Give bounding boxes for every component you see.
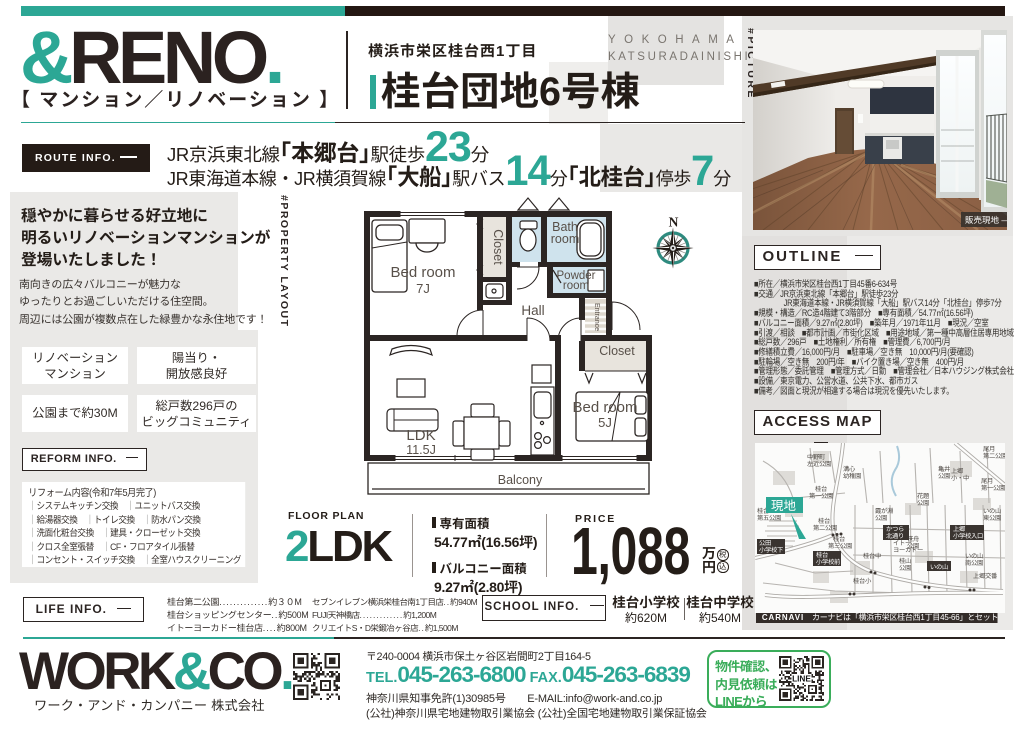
svg-text:ヨーカドー: ヨーカドー (893, 547, 923, 554)
svg-text:尾月: 尾月 (983, 446, 995, 453)
svg-text:公園: 公園 (875, 514, 887, 522)
svg-text:桂台小: 桂台小 (853, 577, 872, 585)
svg-text:いの山: いの山 (965, 552, 983, 560)
svg-text:Closet: Closet (599, 344, 635, 358)
svg-text:Bed room: Bed room (572, 399, 637, 416)
svg-text:room: room (563, 280, 589, 292)
svg-text:亀井: 亀井 (938, 465, 950, 473)
svg-text:桂山: 桂山 (899, 557, 911, 565)
svg-text:7J: 7J (416, 281, 430, 296)
svg-text:N: N (669, 215, 679, 230)
svg-text:Hall: Hall (521, 303, 544, 318)
svg-text:中野町: 中野町 (807, 453, 826, 461)
svg-text:南公園: 南公園 (965, 559, 983, 567)
svg-text:幼稚園: 幼稚園 (843, 472, 861, 480)
svg-text:公田: 公田 (759, 539, 771, 547)
svg-text:小学校前: 小学校前 (816, 558, 840, 566)
svg-text:上郷: 上郷 (951, 467, 964, 475)
svg-text:溝心: 溝心 (843, 465, 856, 473)
svg-text:公園: 公園 (899, 564, 911, 572)
svg-text:Bed room: Bed room (390, 264, 455, 281)
svg-text:花題: 花題 (917, 492, 930, 500)
svg-text:第二公園: 第二公園 (813, 524, 837, 532)
svg-text:北通り: 北通り (886, 532, 904, 540)
svg-text:公園: 公園 (938, 472, 950, 480)
svg-text:小・中: 小・中 (951, 474, 969, 482)
svg-text:第一公園: 第一公園 (981, 484, 1005, 492)
svg-text:小学校下: 小学校下 (759, 546, 783, 554)
svg-text:尾月: 尾月 (981, 478, 993, 485)
svg-text:桂台: 桂台 (833, 535, 845, 543)
svg-text:第二公園: 第二公園 (983, 452, 1005, 460)
svg-text:小学校入口: 小学校入口 (953, 532, 983, 540)
svg-text:霞が淵: 霞が淵 (875, 507, 893, 515)
svg-text:いの山: いの山 (930, 563, 948, 571)
svg-text:いの山: いの山 (983, 507, 1001, 515)
svg-text:東公園: 東公園 (983, 514, 1001, 522)
svg-text:左近公園: 左近公園 (807, 460, 831, 468)
svg-text:販売現地 —: 販売現地 — (965, 215, 1007, 225)
svg-text:5J: 5J (598, 415, 612, 430)
svg-text:Balcony: Balcony (498, 473, 543, 487)
svg-text:上郷: 上郷 (953, 525, 966, 533)
svg-text:LINE: LINE (792, 675, 811, 684)
svg-text:かつら: かつら (886, 526, 904, 533)
svg-text:Entrance: Entrance (593, 303, 600, 331)
svg-text:上郷交番: 上郷交番 (973, 572, 998, 580)
svg-text:現地: 現地 (771, 499, 797, 513)
svg-text:桂台: 桂台 (816, 551, 828, 559)
svg-text:Closet: Closet (491, 229, 505, 265)
svg-text:11.5J: 11.5J (406, 443, 436, 457)
svg-text:第五公園: 第五公園 (757, 514, 781, 522)
svg-text:LDK: LDK (406, 427, 435, 444)
svg-text:第一公園: 第一公園 (809, 492, 833, 500)
svg-text:桂台: 桂台 (815, 485, 827, 493)
svg-text:桂台中: 桂台中 (863, 552, 881, 560)
svg-text:第三公園: 第三公園 (828, 542, 852, 550)
svg-text:room: room (551, 232, 579, 246)
svg-text:イトー: イトー (893, 540, 911, 547)
svg-text:桂台: 桂台 (818, 517, 830, 525)
svg-text:公園: 公園 (917, 499, 929, 507)
